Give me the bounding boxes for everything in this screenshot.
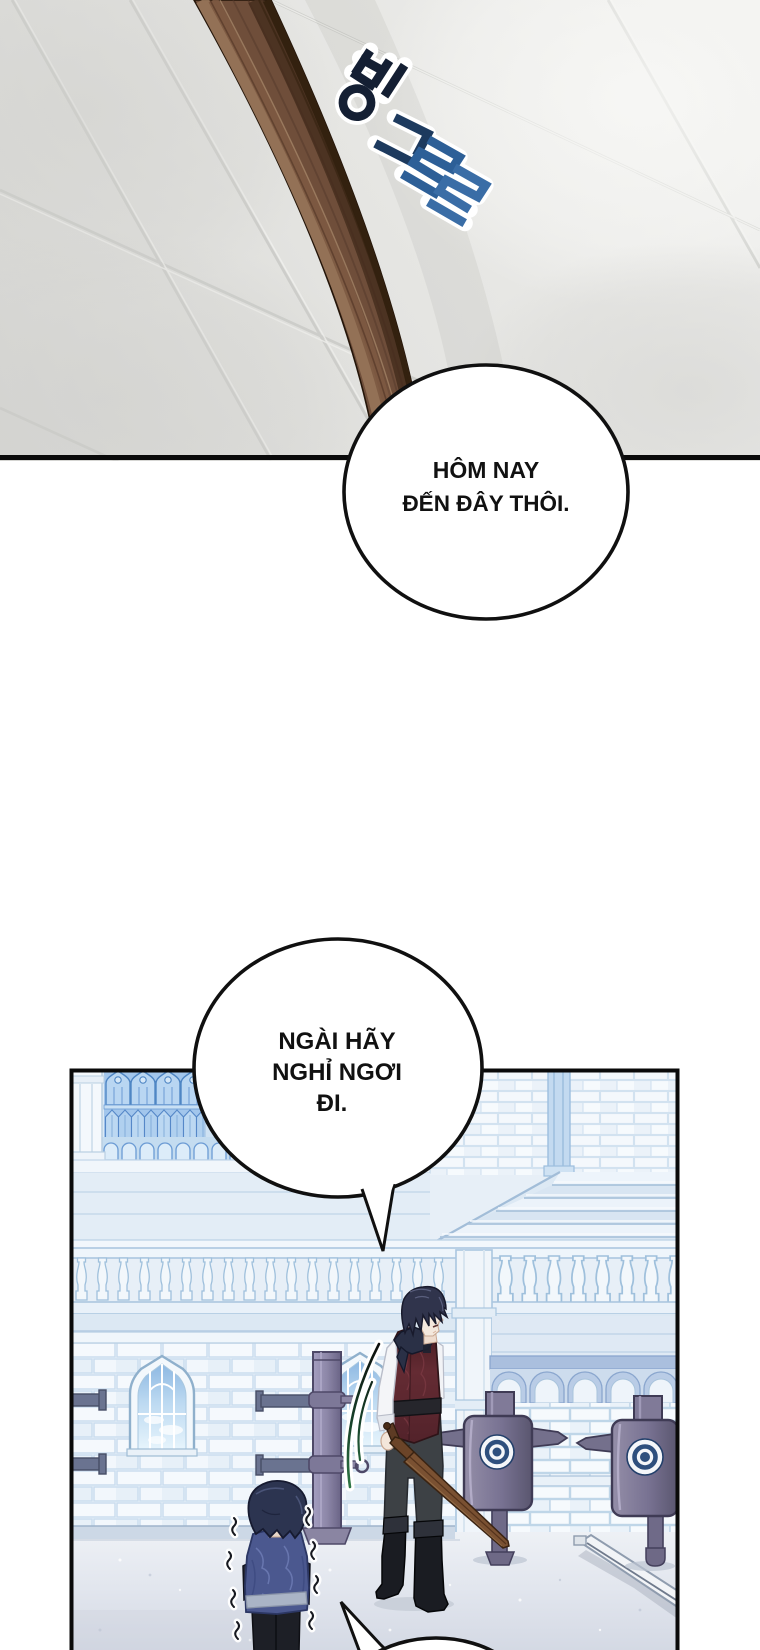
- svg-text:ĐI.: ĐI.: [317, 1090, 348, 1117]
- svg-text:ĐẾN ĐÂY THÔI.: ĐẾN ĐÂY THÔI.: [402, 491, 569, 516]
- svg-text:NGÀI HÃY: NGÀI HÃY: [278, 1027, 395, 1055]
- svg-text:NGHỈ NGƠI: NGHỈ NGƠI: [272, 1057, 402, 1086]
- svg-text:HÔM NAY: HÔM NAY: [433, 456, 540, 483]
